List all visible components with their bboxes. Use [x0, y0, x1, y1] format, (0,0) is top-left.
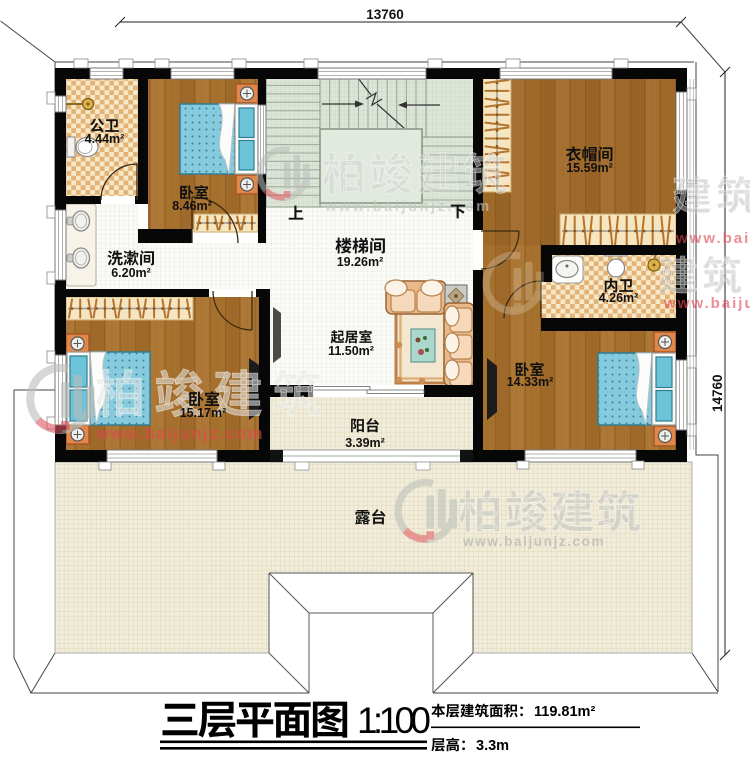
svg-text:1:100: 1:100: [357, 700, 431, 741]
svg-text:15.17m²: 15.17m²: [180, 406, 227, 420]
svg-text:www.baijunjz.com: www.baijunjz.com: [462, 534, 605, 549]
svg-text:19.26m²: 19.26m²: [337, 255, 384, 269]
svg-text:www.baijunjz.com: www.baijunjz.com: [663, 295, 750, 312]
svg-text:4.26m²: 4.26m²: [599, 291, 639, 305]
svg-text:6.20m²: 6.20m²: [111, 266, 151, 280]
svg-text:15.59m²: 15.59m²: [566, 161, 613, 175]
svg-text:11.50m²: 11.50m²: [328, 344, 374, 358]
svg-text:www.baijunjz.com: www.baijunjz.com: [324, 199, 492, 215]
svg-text:14.33m²: 14.33m²: [507, 375, 554, 389]
svg-text:3.39m²: 3.39m²: [345, 436, 385, 450]
svg-text:3.3m: 3.3m: [476, 738, 509, 754]
svg-text:4.44m²: 4.44m²: [85, 132, 125, 146]
svg-text:119.81m²: 119.81m²: [534, 704, 595, 720]
svg-text:www.baijunjz.com: www.baijunjz.com: [95, 425, 264, 443]
svg-text:www.baijunjz.com: www.baijunjz.com: [675, 230, 750, 247]
svg-text:14760: 14760: [710, 374, 725, 412]
svg-text:8.46m²: 8.46m²: [172, 199, 212, 213]
svg-text:13760: 13760: [366, 7, 404, 22]
